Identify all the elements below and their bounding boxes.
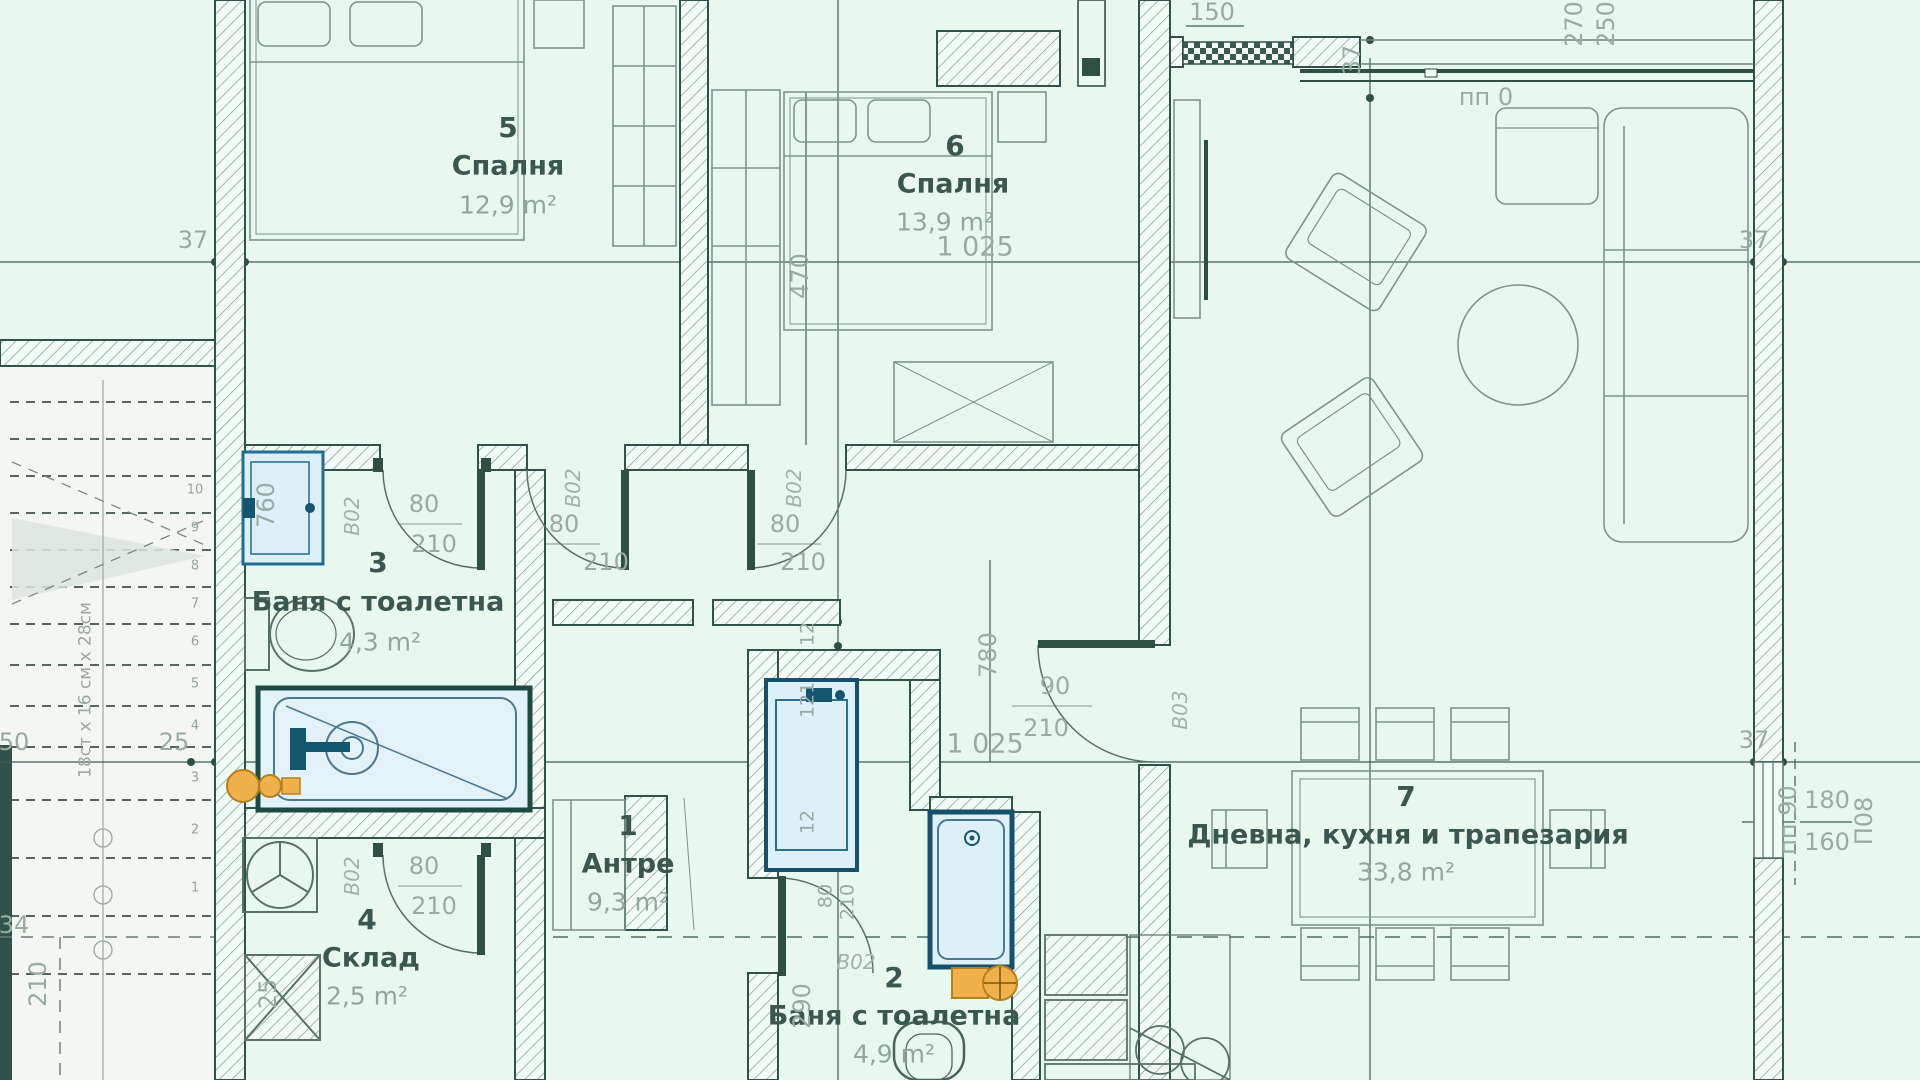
kitchen-units xyxy=(1045,935,1230,1080)
wall-bath2-right xyxy=(1012,812,1040,1080)
wall-left-main xyxy=(215,0,245,1080)
stairwell xyxy=(0,340,215,1080)
room5-furniture xyxy=(250,0,676,246)
dining-table-icon xyxy=(1292,771,1543,925)
door-bath2-arc xyxy=(778,878,873,973)
floor-plan-canvas xyxy=(0,0,1920,1080)
window-top-icon xyxy=(1183,42,1293,64)
door-bath3-arc xyxy=(383,470,481,568)
kitchen-cabinet-icon xyxy=(1045,935,1127,995)
pillow-icon xyxy=(794,100,856,142)
kitchen-cabinet-icon xyxy=(1045,1000,1127,1060)
chair-icon xyxy=(1451,928,1509,980)
sink-cabinet-icon xyxy=(766,680,857,870)
nightstand-icon xyxy=(534,0,584,48)
floor-plan: 5 Спалня 12,9 m² 6 Спалня 13,9 m² 1 025 … xyxy=(0,0,1920,1080)
chair-icon xyxy=(1451,708,1509,760)
chair-icon xyxy=(1550,810,1605,868)
faucet-icon xyxy=(806,688,832,702)
toilet-icon xyxy=(894,1022,964,1080)
wall-room5-room6 xyxy=(680,0,708,445)
pillow-icon xyxy=(350,2,422,46)
wall-terrace-block xyxy=(937,31,1060,86)
door-hall2-arc xyxy=(748,470,846,568)
chair-icon xyxy=(1212,810,1267,868)
toilet-tank-icon xyxy=(245,598,269,670)
bed-room5-icon xyxy=(250,0,524,240)
chair-icon xyxy=(1376,708,1434,760)
pillow-icon xyxy=(258,2,330,46)
bath2-fixtures xyxy=(766,680,1017,1080)
door-b03-arc xyxy=(1038,645,1155,762)
chair-icon xyxy=(1376,928,1434,980)
room6-furniture xyxy=(712,90,1053,442)
door-storage-arc xyxy=(383,855,481,953)
chair-icon xyxy=(1301,928,1359,980)
coffee-table-icon xyxy=(1458,285,1578,405)
wall-right-upper xyxy=(1754,0,1783,762)
faucet-icon xyxy=(290,728,306,770)
sofa-icon xyxy=(1604,108,1748,542)
wall-right-lower xyxy=(1754,858,1783,1080)
bed-room6-icon xyxy=(784,92,992,330)
storage-fixtures xyxy=(243,838,320,1040)
nightstand-icon xyxy=(998,92,1046,142)
ottoman-icon xyxy=(1496,108,1598,204)
window-p08-icon xyxy=(1754,762,1783,858)
chair-icon xyxy=(1301,708,1359,760)
antre-furniture xyxy=(553,798,694,930)
wall-room6-living xyxy=(1139,0,1170,645)
pillow-icon xyxy=(868,100,930,142)
closet-icon xyxy=(553,800,625,930)
shower-icon xyxy=(930,812,1012,967)
boiler-valve-icon xyxy=(227,770,259,802)
wall-antre-stub xyxy=(625,796,667,930)
wall-bath2-left-lower xyxy=(748,973,778,1080)
tv-cabinet-icon xyxy=(1174,100,1200,318)
living-furniture xyxy=(1174,100,1748,980)
wall-storage-right xyxy=(515,838,545,1080)
